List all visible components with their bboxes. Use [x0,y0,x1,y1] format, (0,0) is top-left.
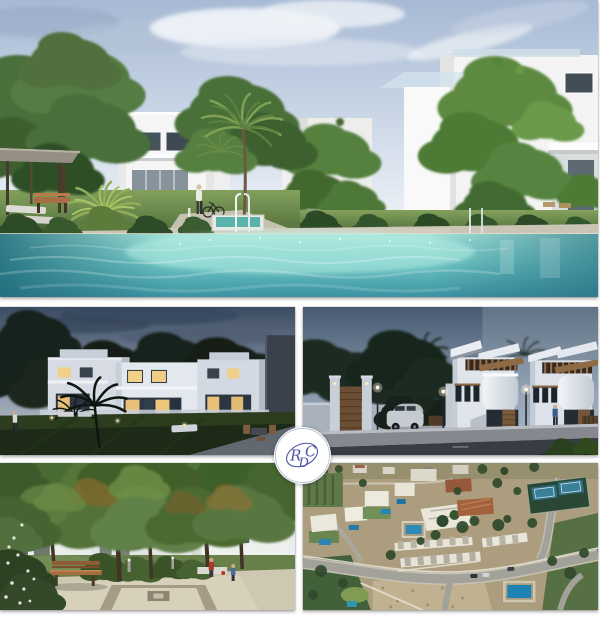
hero-pool-image [0,0,598,297]
courtyard-image [0,463,295,610]
property-collage: R D C [0,0,600,622]
villa-right [197,352,267,419]
spa-jacuzzi [212,215,264,231]
logo-letter-c: C [305,443,316,460]
rdc-logo-badge: R D C [274,427,331,484]
person-walking [553,404,558,425]
pool-water [0,230,598,297]
villas-dusk-image [0,307,295,455]
aerial-view-image [303,463,598,610]
street-dusk-image [303,307,598,455]
